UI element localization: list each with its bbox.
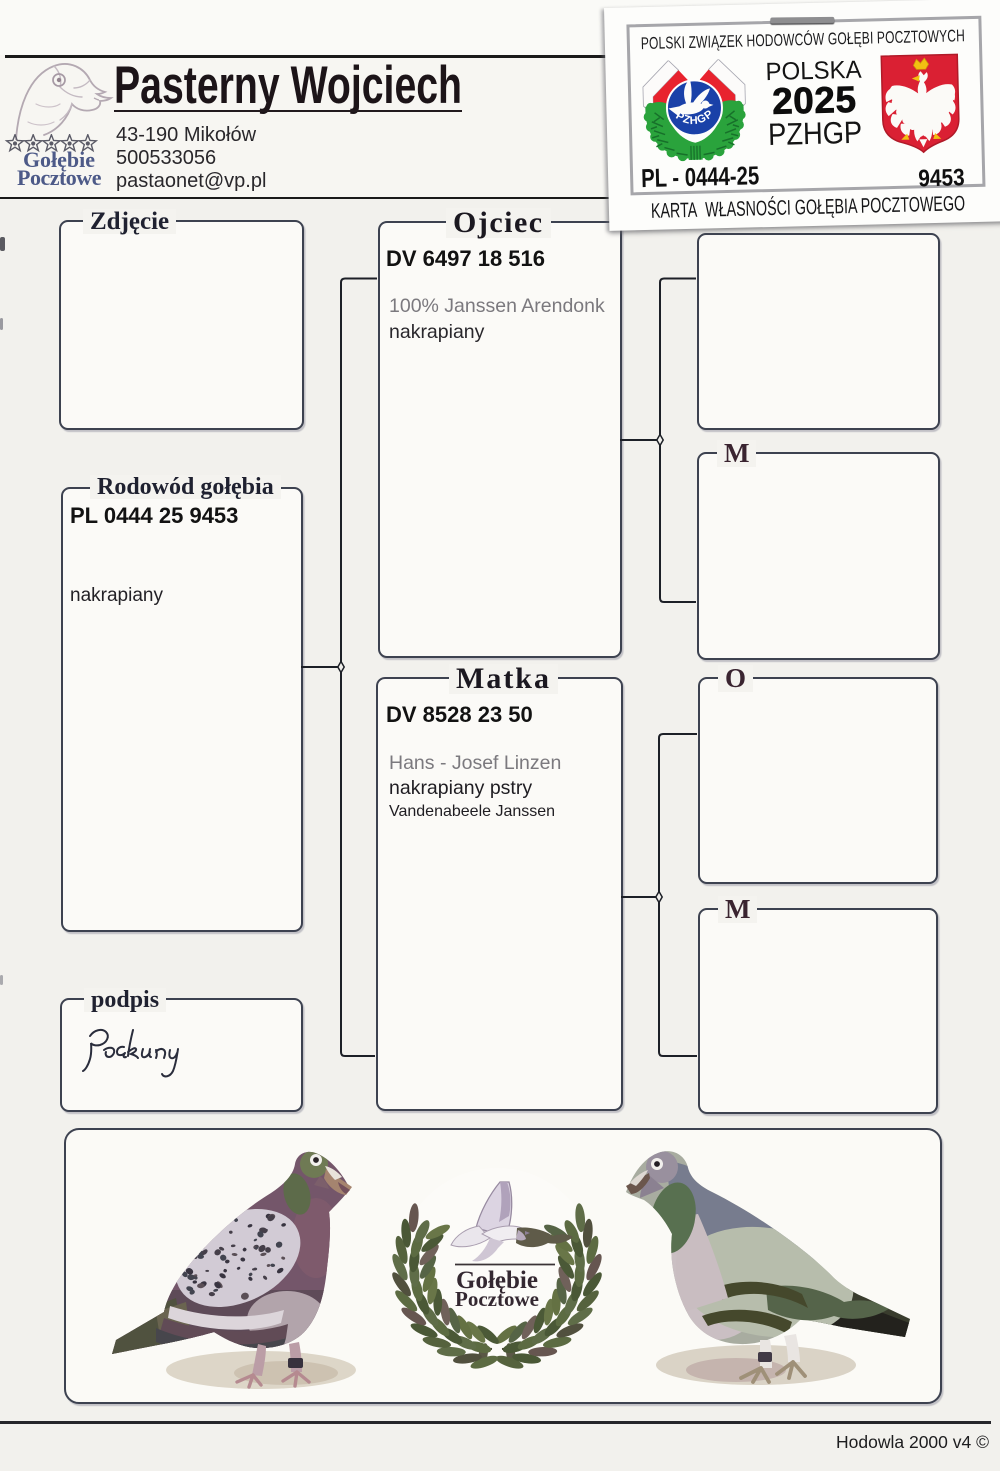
svg-text:Pocztowe: Pocztowe <box>455 1287 539 1311</box>
